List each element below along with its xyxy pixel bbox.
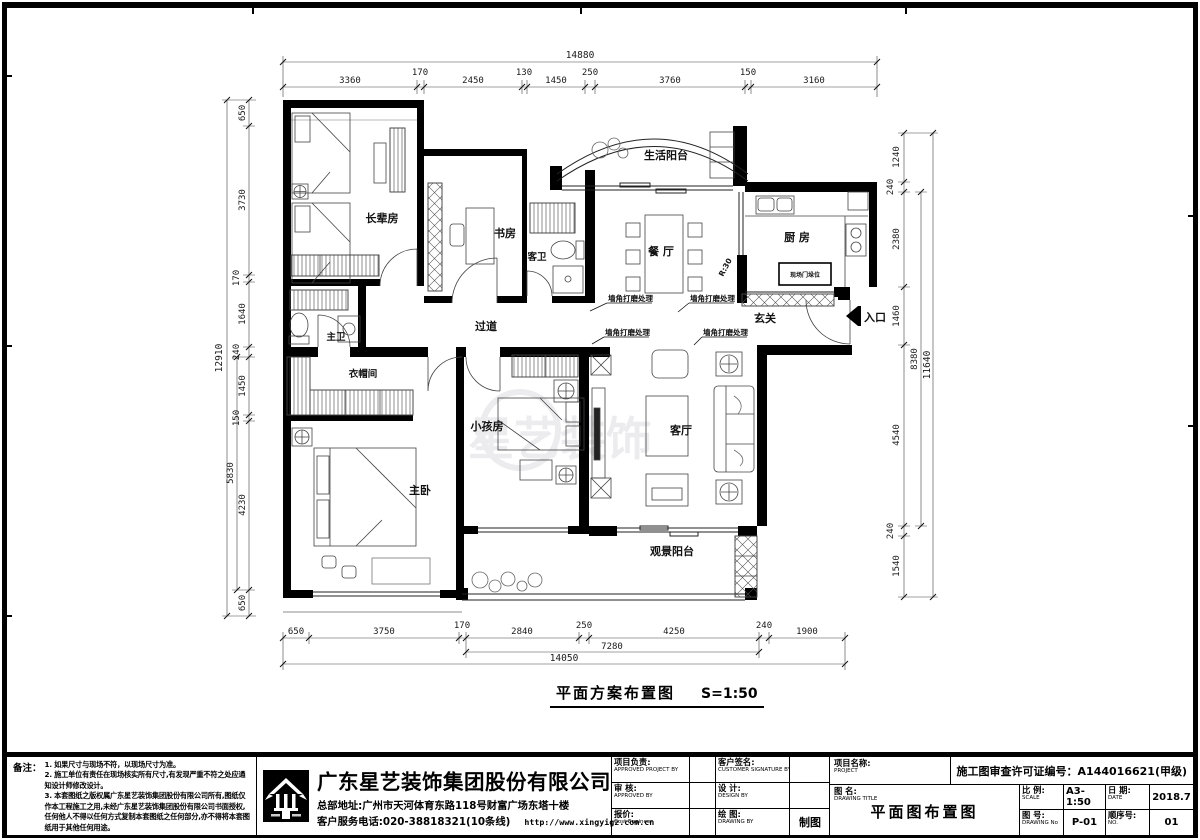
label-cloakroom: 衣帽间: [349, 368, 378, 380]
balcony-x-column: [735, 536, 757, 597]
svg-text:2450: 2450: [462, 76, 484, 86]
dimension-text-right: 11640 8380 1240 240 2380 1460 4540 240 1…: [886, 146, 933, 577]
svg-text:1540: 1540: [892, 555, 902, 577]
date-value: 2018.7: [1150, 785, 1193, 810]
dimension-text-left: 12910 5830 650 3730 170 1640 240 1450 15…: [214, 105, 248, 611]
kids-corner-unit: [554, 380, 578, 402]
svg-text:150: 150: [232, 410, 242, 426]
svg-text:3160: 3160: [803, 76, 825, 86]
svg-text:1900: 1900: [796, 627, 818, 637]
study-bookshelf: [428, 183, 442, 291]
title-block: 备注： 1. 如果尺寸与现场不符，以现场尺寸为准。 2. 施工单位有责任在现场核…: [7, 752, 1193, 835]
svg-text:11640: 11640: [922, 350, 933, 379]
svg-text:170: 170: [412, 68, 428, 78]
plan-title: 平面方案布置图 S=1:50: [550, 682, 764, 708]
design-cell: 设 计: DESIGN BY: [716, 783, 790, 809]
corner-callouts: 墙角打磨处理 墙角打磨处理 墙角打磨处理 墙角打磨处理: [590, 293, 748, 345]
elder-bed-1: [292, 113, 350, 193]
dwgno-label-cell: 图 号: DRAWING No: [1020, 810, 1064, 835]
svg-text:入口: 入口: [864, 311, 886, 324]
svg-text:1450: 1450: [238, 375, 248, 397]
svg-text:现场门垛位: 现场门垛位: [790, 271, 820, 279]
svg-text:250: 250: [576, 621, 592, 631]
project-name-cell: 项目名称: PROJECT: [830, 757, 951, 784]
pm-value-cell: [690, 757, 716, 783]
svg-text:14050: 14050: [550, 653, 579, 664]
cloakroom-wardrobe: [287, 357, 413, 415]
design-value-cell: [790, 783, 830, 809]
dimension-text-bottom: 14050 7280 650 3750 170 2840 250 4250 24…: [288, 621, 818, 664]
xingyi-logo-icon: [263, 770, 309, 822]
svg-text:650: 650: [238, 105, 248, 121]
customer-cell: 客户签名: CUSTOMER SIGNATURE BY: [716, 757, 790, 783]
notes-section: 备注： 1. 如果尺寸与现场不符，以现场尺寸为准。 2. 施工单位有责任在现场核…: [7, 757, 257, 835]
company-section: 广东星艺装饰集团股份有限公司 总部地址:广州市天河体育东路118号财富广场东塔十…: [257, 757, 612, 835]
ceiling-fan-icon: [292, 184, 308, 199]
date-label-cell: 日 期: DATE: [1106, 785, 1150, 810]
svg-text:1240: 1240: [892, 146, 902, 168]
label-foyer: 玄关: [754, 311, 776, 325]
note-line: 2. 施工单位有责任在现场核实所有尺寸,有发现严重不符之处应通知设计师修改设计。: [45, 770, 250, 791]
review-cell: 审 核: APPROVED BY: [612, 783, 690, 809]
guest-bath-fixtures: [530, 203, 584, 293]
kids-wardrobe: [512, 355, 578, 377]
company-name: 广东星艺装饰集团股份有限公司: [317, 765, 654, 795]
scale-label-cell: 比 例: SCALE: [1020, 785, 1064, 810]
label-kids-room: 小孩房: [470, 419, 504, 433]
pm-cell: 项目负责: APPROVED PROJECT BY: [612, 757, 690, 783]
kitchen-threshold: [742, 294, 834, 306]
review-value-cell: [690, 783, 716, 809]
svg-text:3360: 3360: [339, 76, 361, 86]
floor-plan-svg: 星艺装饰: [0, 0, 1200, 750]
svg-text:150: 150: [740, 68, 756, 78]
svg-text:7280: 7280: [601, 642, 623, 652]
notes-label: 备注：: [13, 760, 42, 835]
svg-text:3730: 3730: [238, 189, 248, 211]
svg-text:170: 170: [454, 621, 470, 631]
label-life-balcony: 生活阳台: [644, 148, 688, 162]
label-guest-bath: 客卫: [526, 251, 547, 263]
study-desk: [450, 208, 494, 264]
svg-text:4540: 4540: [892, 424, 902, 446]
master-bath-fixtures: [289, 290, 360, 344]
svg-text:1640: 1640: [238, 303, 248, 325]
drawing-title-value: 平面图布置图: [830, 801, 1019, 822]
scale-value: A3-1:50: [1064, 785, 1106, 810]
svg-text:2380: 2380: [892, 228, 902, 250]
plan-title-text: 平面方案布置图: [556, 682, 675, 703]
svg-text:12910: 12910: [214, 343, 225, 372]
svg-text:3760: 3760: [659, 76, 681, 86]
company-phone: 客户服务电话:020-38818321(10条线): [317, 813, 510, 828]
radius-note: R:30: [717, 257, 734, 278]
drawing-sheet: 星艺装饰: [0, 0, 1200, 840]
plan-scale-text: S=1:50: [701, 686, 758, 702]
label-dining: 餐 厅: [647, 244, 674, 258]
dimension-text-top: 14880 3360 170 2450 130 1450 250 3760 15…: [339, 50, 825, 86]
svg-text:240: 240: [756, 621, 772, 631]
license-cell: 施工图审查许可证编号：A144016621(甲级): [951, 757, 1193, 784]
signature-grid: 项目负责: APPROVED PROJECT BY 客户签名: CUSTOMER…: [612, 757, 830, 835]
svg-text:8380: 8380: [910, 348, 920, 370]
company-logo: [263, 770, 309, 822]
svg-text:4230: 4230: [238, 494, 248, 516]
svg-text:650: 650: [288, 627, 304, 637]
svg-text:4250: 4250: [663, 627, 685, 637]
master-nightstand: [292, 428, 312, 446]
label-master-bath: 主卫: [326, 331, 346, 343]
project-section: 项目名称: PROJECT 施工图审查许可证编号：A144016621(甲级) …: [830, 757, 1193, 835]
label-kitchen: 厨 房: [784, 230, 810, 244]
view-balcony-plants: [472, 572, 542, 592]
note-line: 3. 本套图纸之版权属广东星艺装饰集团股份有限公司所有,图纸仅作本工程施工之用,…: [45, 791, 250, 833]
door-label: 现场门垛位: [779, 263, 831, 285]
svg-text:3750: 3750: [373, 627, 395, 637]
svg-text:240: 240: [886, 179, 896, 195]
sofa: [714, 352, 754, 504]
note-line: 1. 如果尺寸与现场不符，以现场尺寸为准。: [45, 760, 250, 770]
svg-text:170: 170: [232, 270, 242, 286]
seq-value: 01: [1150, 810, 1193, 835]
elder-dresser: [291, 255, 379, 276]
label-view-balcony: 观景阳台: [650, 544, 694, 558]
svg-text:1460: 1460: [892, 305, 902, 327]
living-bench: [646, 474, 688, 506]
svg-text:240: 240: [886, 523, 896, 539]
balcony-cabinet: [710, 132, 734, 178]
label-master-bedroom: 主卧: [409, 483, 431, 497]
entry-arrow-icon: 入口: [846, 306, 886, 326]
label-elder-bedroom: 长辈房: [366, 211, 399, 225]
master-bed: [314, 448, 416, 546]
quote-cell: 报价: Cost Engineer: [612, 809, 690, 835]
drawing-title-cell: 图 名: DRAWING TITLE 平面图布置图: [830, 785, 1020, 835]
label-study: 书房: [494, 226, 516, 240]
svg-text:墙角打磨处理: 墙角打磨处理: [690, 293, 735, 303]
svg-text:14880: 14880: [566, 50, 595, 61]
label-living: 客厅: [669, 423, 692, 437]
svg-text:墙角打磨处理: 墙角打磨处理: [608, 293, 653, 303]
drawing-by-cell: 绘 图: DRAWING BY: [716, 809, 790, 835]
dwgno-value: P-01: [1064, 810, 1106, 835]
svg-text:1450: 1450: [545, 76, 567, 86]
svg-text:5830: 5830: [226, 462, 236, 484]
svg-text:墙角打磨处理: 墙角打磨处理: [605, 327, 650, 337]
svg-text:墙角打磨处理: 墙角打磨处理: [703, 327, 748, 337]
company-address: 总部地址:广州市天河体育东路118号财富广场东塔十楼: [317, 797, 654, 812]
drawing-by-value: 制图: [790, 809, 830, 835]
walls: [283, 100, 877, 600]
svg-text:240: 240: [232, 344, 242, 360]
label-corridor: 过道: [475, 319, 497, 333]
seq-label-cell: 顺序号: NO.: [1106, 810, 1150, 835]
svg-text:130: 130: [516, 68, 532, 78]
svg-text:250: 250: [582, 68, 598, 78]
customer-value-cell: [790, 757, 830, 783]
elder-cabinet: [390, 128, 405, 192]
svg-text:2840: 2840: [511, 627, 533, 637]
balcony-plant: [592, 138, 628, 158]
quote-value-cell: [690, 809, 716, 835]
svg-text:650: 650: [238, 595, 248, 611]
